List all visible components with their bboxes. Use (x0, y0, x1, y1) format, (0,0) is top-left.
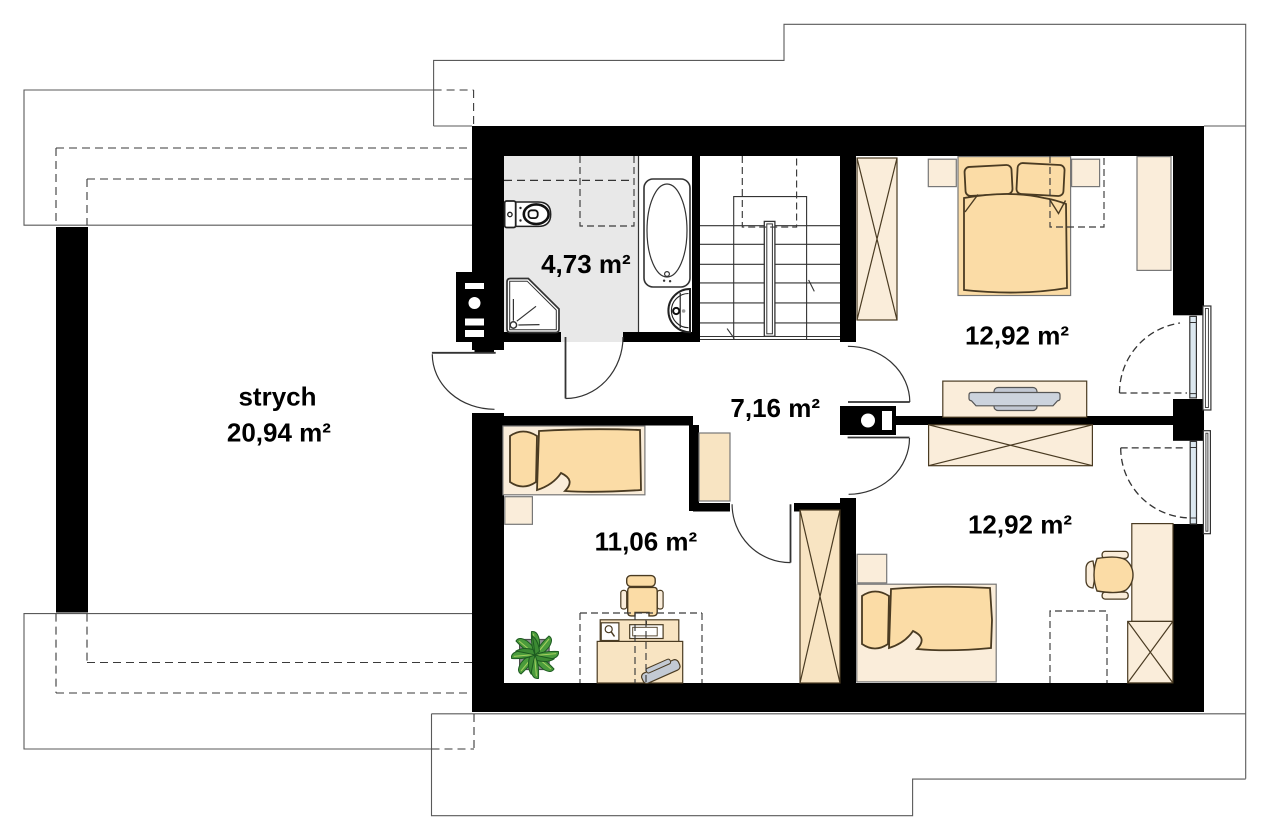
svg-text:7,16 m²: 7,16 m² (730, 393, 820, 423)
svg-text:11,06 m²: 11,06 m² (595, 527, 698, 557)
svg-text:12,92 m²: 12,92 m² (965, 321, 1069, 351)
svg-text:12,92 m²: 12,92 m² (968, 510, 1072, 540)
svg-text:20,94 m²: 20,94 m² (227, 418, 331, 448)
svg-text:4,73 m²: 4,73 m² (541, 249, 631, 279)
svg-text:strych: strych (238, 381, 316, 411)
